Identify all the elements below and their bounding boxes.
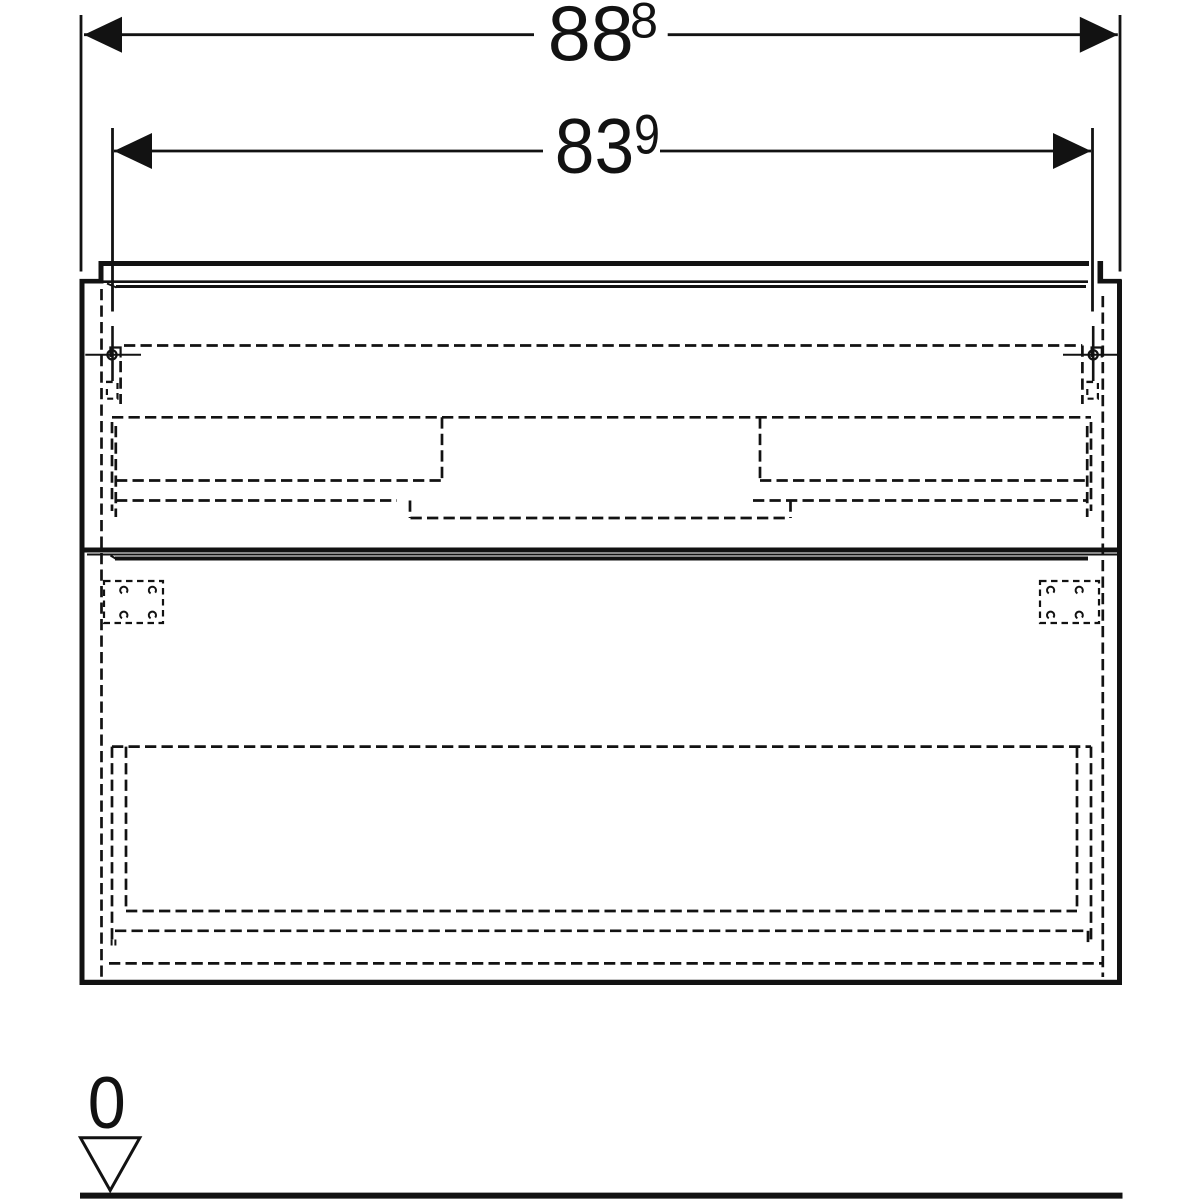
svg-text:0: 0 [88, 1063, 126, 1144]
svg-text:9: 9 [634, 103, 660, 166]
svg-text:8: 8 [630, 0, 658, 48]
svg-text:88: 88 [548, 0, 634, 77]
svg-text:83: 83 [555, 101, 634, 189]
